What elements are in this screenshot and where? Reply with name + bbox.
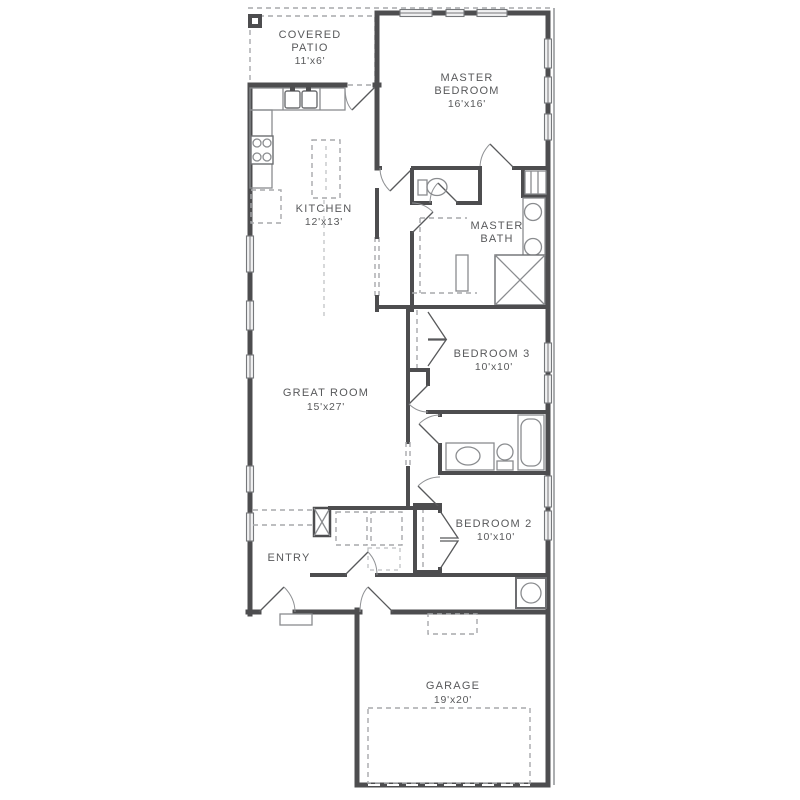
closet-double-doors: [428, 312, 446, 366]
bedroom3-door-arc: [409, 404, 428, 412]
kitchen-label-1: KITCHEN: [296, 203, 353, 215]
kitchen-sink-basin-right: [302, 91, 317, 108]
bedroom2-label-dims: 10'x10': [477, 531, 515, 543]
floor-plan-drawing: COVERED PATIO 11'x6': [0, 0, 800, 800]
front-door-arc: [284, 587, 295, 612]
entry-closet: [314, 508, 330, 536]
room-master-bath: MASTER BATH: [375, 88, 546, 310]
entry-label: ENTRY: [267, 552, 310, 564]
floor-plan: COVERED PATIO 11'x6': [0, 0, 800, 800]
masterbed-label-dims: 16'x16': [448, 98, 486, 110]
washer-dryer: [336, 512, 402, 570]
tub: [518, 415, 544, 470]
north-windows: [400, 10, 507, 17]
patio-label-1: COVERED: [279, 29, 342, 41]
closet-door-leaf: [428, 340, 446, 366]
linen-shelf-box: [525, 171, 546, 194]
toilet-tank: [497, 461, 513, 470]
masterbath-door-leaf: [412, 212, 433, 233]
dryer-dashed: [371, 512, 402, 545]
bedroom3-closet-walls: [408, 370, 428, 384]
kitchen-sink-basin-left: [285, 91, 300, 108]
sink-faucet: [306, 87, 311, 91]
garage-door-leaf: [368, 587, 393, 612]
entry-hall-door-arc: [368, 552, 377, 575]
patio-label-2: PATIO: [291, 42, 328, 54]
masterbath-label-2: BATH: [480, 233, 513, 245]
shower: [495, 255, 545, 305]
exterior-walls: [248, 13, 548, 785]
room-hall-bath: [419, 412, 544, 473]
kitchen-label-dims: 12'x13': [305, 216, 343, 228]
room-covered-patio: COVERED PATIO 11'x6': [248, 14, 375, 85]
toilet-bowl: [427, 179, 447, 196]
patio-door-leaf: [352, 87, 375, 110]
kitchen-cabinet-dashed: [251, 190, 281, 223]
greatroom-label-dims: 15'x27': [307, 401, 345, 413]
front-door-leaf: [259, 587, 284, 612]
garage-door-arc: [360, 587, 368, 612]
bedroom2-door-arc: [418, 477, 440, 486]
garage-parking-dashed: [368, 708, 530, 783]
closet-bench: [456, 255, 468, 291]
masterbed-label-2: BEDROOM: [434, 85, 499, 97]
toilet-tank: [418, 180, 427, 195]
garage-label-1: GARAGE: [426, 680, 480, 692]
hallbath-door-leaf: [419, 424, 440, 445]
vanity-sink: [525, 204, 542, 221]
double-vanity: [523, 198, 545, 262]
hallbath-door-arc: [419, 415, 440, 424]
masterbed-label-1: MASTER: [440, 72, 493, 84]
room-bedroom-3: BEDROOM 3 10'x10': [377, 307, 548, 412]
wc-door-leaf: [438, 183, 458, 203]
closet-door-leaf: [440, 541, 458, 569]
cased-opening-hall: [375, 237, 379, 297]
attic-access-dashed: [428, 614, 477, 634]
garage-label-dims: 19'x20': [434, 694, 472, 706]
bedroom3-label-dims: 10'x10': [475, 361, 513, 373]
cased-opening-greatroom: [406, 442, 410, 468]
entry-niche-dashed: [253, 510, 313, 525]
bedroom2-closet-walls: [415, 505, 440, 572]
front-door: [259, 587, 312, 625]
hall-door-arc: [380, 168, 390, 191]
hall-door-leaf: [390, 168, 413, 191]
sink-faucet: [290, 87, 295, 91]
room-garage: GARAGE 19'x20': [360, 587, 530, 785]
bedroom2-label-1: BEDROOM 2: [456, 518, 533, 530]
water-heater: [516, 578, 546, 608]
greatroom-label-1: GREAT ROOM: [283, 387, 369, 399]
patio-door-arc: [345, 87, 352, 110]
room-great-room: GREAT ROOM 15'x27': [283, 307, 410, 508]
walk-in-closet: [412, 218, 477, 293]
masterbed-door-leaf: [490, 144, 514, 168]
closet-door-leaf: [428, 312, 446, 339]
room-kitchen: KITCHEN 12'x13': [250, 87, 375, 318]
tub-basin: [521, 419, 541, 466]
bedroom3-label-1: BEDROOM 3: [454, 348, 531, 360]
patio-post-inner: [252, 18, 258, 24]
bedroom3-door-leaf: [409, 385, 428, 404]
linen-closet: [523, 168, 546, 196]
masterbath-label-1: MASTER: [470, 220, 523, 232]
patio-label-dims: 11'x6': [295, 55, 326, 67]
masterbed-door-arc: [480, 144, 490, 168]
wc-door-arc: [430, 183, 438, 203]
front-step: [280, 614, 312, 625]
toilet-bowl: [497, 444, 513, 460]
vanity-hall-bath: [446, 443, 494, 470]
vanity-sink: [456, 447, 480, 465]
linen-walls: [523, 168, 546, 196]
entry-hall-door-leaf: [345, 552, 368, 575]
washer-dashed: [336, 512, 367, 545]
toilet-hall-bath: [497, 444, 513, 470]
vanity-sink: [525, 239, 542, 256]
wc-walls: [412, 168, 480, 203]
room-bedroom-2: BEDROOM 2 10'x10': [415, 473, 548, 575]
